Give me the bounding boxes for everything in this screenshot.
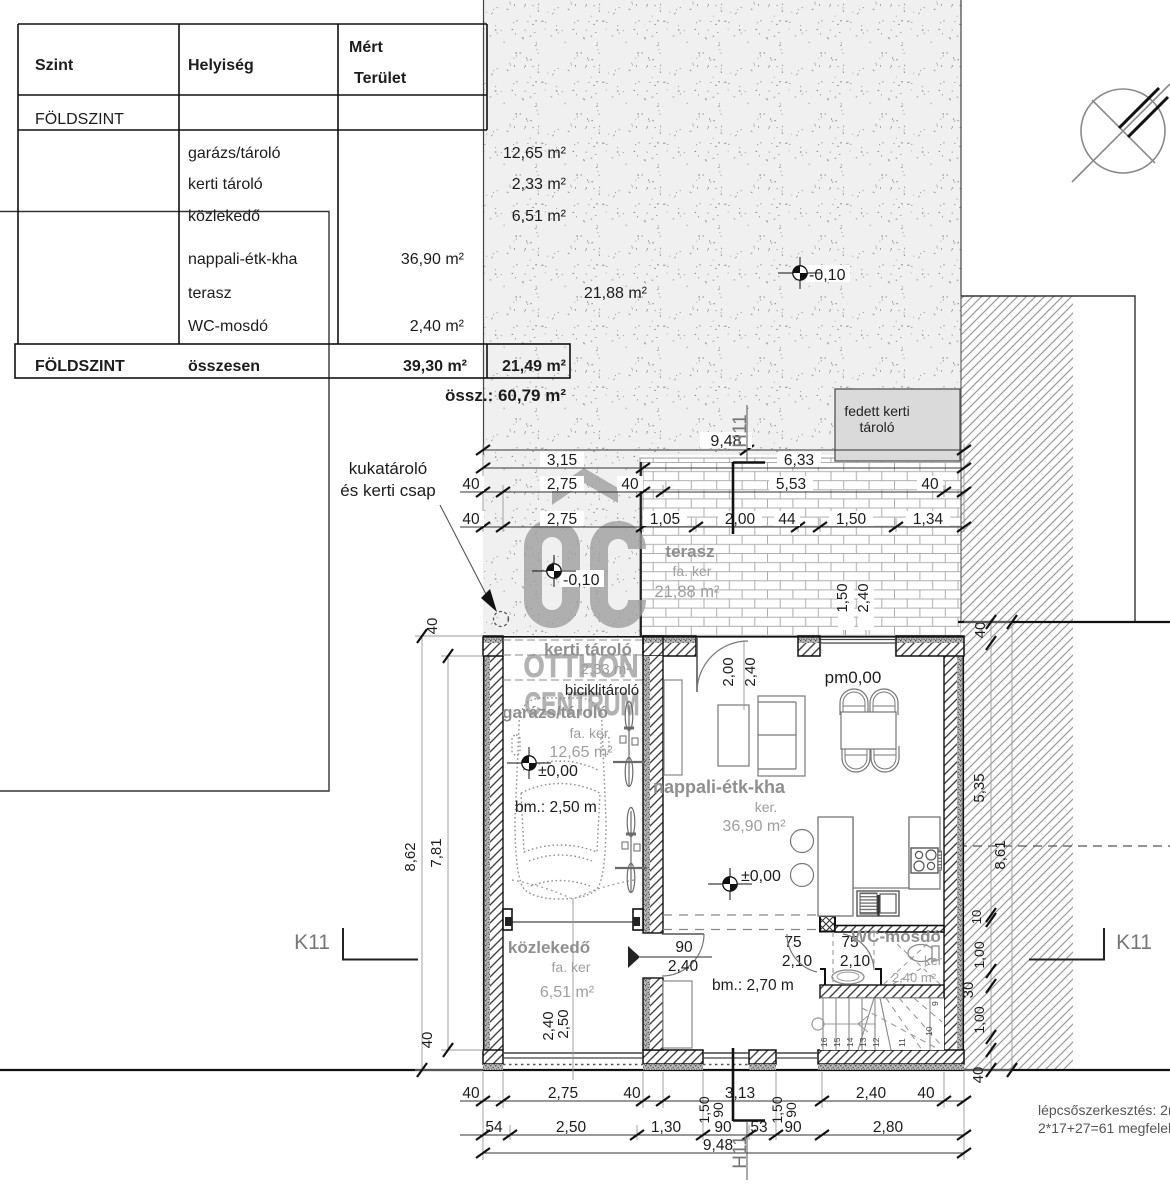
svg-text:1,05: 1,05: [650, 511, 680, 528]
svg-text:7,81: 7,81: [428, 838, 445, 867]
svg-text:90: 90: [714, 1119, 732, 1136]
svg-text:2,80: 2,80: [873, 1119, 904, 1136]
svg-text:nappali-étk-kha: nappali-étk-kha: [188, 251, 298, 268]
svg-text:összesen: összesen: [188, 358, 260, 375]
svg-text:6,51 m²: 6,51 m²: [512, 208, 567, 225]
svg-text:±0,00: ±0,00: [741, 868, 781, 885]
svg-text:H11: H11: [730, 1135, 751, 1168]
svg-text:10: 10: [969, 910, 984, 924]
svg-text:kukatároló: kukatároló: [349, 459, 427, 478]
svg-text:40: 40: [424, 618, 441, 635]
svg-text:13: 13: [858, 1037, 868, 1047]
svg-text:90: 90: [710, 1102, 726, 1118]
svg-text:biciklitároló: biciklitároló: [565, 682, 639, 699]
svg-text:12: 12: [871, 1037, 881, 1047]
svg-text:1,50: 1,50: [836, 511, 867, 528]
svg-text:-0,10: -0,10: [809, 267, 846, 284]
svg-text:2,75: 2,75: [547, 511, 577, 528]
svg-text:39,30 m²: 39,30 m²: [403, 358, 467, 375]
svg-text:2,40: 2,40: [668, 958, 699, 975]
svg-text:FÖLDSZINT: FÖLDSZINT: [35, 356, 125, 375]
svg-text:40: 40: [917, 1085, 935, 1102]
svg-text:2,40 m²: 2,40 m²: [410, 318, 465, 335]
svg-text:terasz: terasz: [665, 542, 714, 561]
svg-text:bm.: 2,70 m: bm.: 2,70 m: [712, 977, 794, 994]
svg-text:Mért: Mért: [349, 39, 383, 56]
svg-text:H11: H11: [730, 414, 751, 447]
svg-text:garázs/tároló: garázs/tároló: [502, 703, 608, 722]
svg-text:és kerti csap: és kerti csap: [340, 481, 435, 500]
svg-text:WC-mosdó: WC-mosdó: [851, 927, 941, 946]
svg-text:40: 40: [623, 1085, 641, 1102]
svg-text:1,00: 1,00: [971, 941, 987, 968]
svg-text:36,90 m²: 36,90 m²: [401, 251, 465, 268]
svg-text:Terület: Terület: [354, 70, 407, 87]
svg-text:K11: K11: [1116, 931, 1152, 954]
svg-text:1,00: 1,00: [971, 1006, 987, 1033]
svg-text:12,65 m²: 12,65 m²: [503, 145, 567, 162]
svg-text:pm0,00: pm0,00: [825, 668, 882, 687]
svg-text:fa. ker: fa. ker: [552, 959, 591, 975]
svg-text:2,00: 2,00: [725, 511, 756, 528]
svg-text:2*17+27=61 megfelel!: 2*17+27=61 megfelel!: [1038, 1120, 1170, 1136]
svg-text:FÖLDSZINT: FÖLDSZINT: [35, 110, 124, 128]
svg-text:3,13: 3,13: [725, 1085, 755, 1102]
svg-text:1,30: 1,30: [651, 1119, 682, 1136]
svg-text:21,88 m²: 21,88 m²: [654, 583, 720, 601]
svg-text:közlekedő: közlekedő: [188, 208, 260, 225]
svg-text:90: 90: [783, 1102, 799, 1118]
svg-text:Helyiség: Helyiség: [188, 57, 254, 74]
svg-text:54: 54: [485, 1119, 503, 1136]
svg-text:2,50: 2,50: [555, 1009, 572, 1038]
svg-text:ker.: ker.: [755, 799, 778, 815]
svg-text:tároló: tároló: [859, 419, 894, 435]
svg-text:40: 40: [921, 476, 939, 493]
svg-text:9: 9: [930, 1001, 940, 1006]
svg-text:2,10: 2,10: [782, 953, 813, 970]
svg-text:fedett kerti: fedett kerti: [844, 403, 909, 419]
svg-text:2,40: 2,40: [856, 1085, 887, 1102]
svg-text:Szint: Szint: [35, 57, 74, 74]
svg-text:44: 44: [778, 511, 796, 528]
svg-text:8,62: 8,62: [402, 842, 419, 871]
svg-text:11: 11: [897, 1038, 907, 1047]
svg-text:40: 40: [972, 622, 989, 639]
svg-text:6,33: 6,33: [784, 452, 814, 469]
svg-text:15: 15: [832, 1037, 842, 1047]
svg-text:5,35: 5,35: [971, 773, 988, 802]
svg-text:21,49 m²: 21,49 m²: [502, 358, 566, 375]
svg-text:terasz: terasz: [188, 285, 232, 302]
svg-text:3,15: 3,15: [547, 452, 577, 469]
svg-text:2,33 m²: 2,33 m²: [581, 661, 632, 678]
svg-text:40: 40: [462, 511, 480, 528]
svg-text:2,00: 2,00: [720, 657, 737, 686]
svg-text:1,50: 1,50: [834, 583, 851, 612]
svg-text:közlekedő: közlekedő: [508, 938, 590, 957]
svg-text:30: 30: [960, 982, 977, 999]
svg-text:K11: K11: [294, 931, 330, 954]
svg-text:kerti tároló: kerti tároló: [544, 640, 632, 659]
svg-text:14: 14: [845, 1037, 855, 1047]
svg-text:40: 40: [621, 476, 639, 493]
svg-text:2,75: 2,75: [548, 1085, 578, 1102]
svg-text:5,53: 5,53: [776, 476, 806, 493]
svg-text:2,40: 2,40: [742, 657, 759, 686]
svg-text:-0,10: -0,10: [563, 572, 600, 589]
svg-text:40: 40: [462, 476, 480, 493]
svg-text:2,33 m²: 2,33 m²: [512, 176, 567, 193]
svg-text:10: 10: [924, 1026, 934, 1036]
svg-text:2,10: 2,10: [840, 953, 871, 970]
svg-text:6,51 m²: 6,51 m²: [540, 984, 595, 1001]
svg-text:36,90 m²: 36,90 m²: [722, 818, 786, 835]
svg-text:90: 90: [675, 939, 693, 956]
svg-text:bm.: 2,50 m: bm.: 2,50 m: [515, 799, 597, 816]
svg-text:12,65 m²: 12,65 m²: [549, 744, 613, 761]
svg-text:9,48: 9,48: [703, 1137, 733, 1154]
svg-text:2,40 m²: 2,40 m²: [892, 970, 937, 985]
svg-text:kerti tároló: kerti tároló: [188, 176, 263, 193]
svg-text:16: 16: [819, 1037, 829, 1047]
svg-text:±0,00: ±0,00: [538, 763, 578, 780]
svg-text:lépcsőszerkesztés: 2m: lépcsőszerkesztés: 2m: [1038, 1102, 1170, 1118]
svg-text:össz.: 60,79 m²: össz.: 60,79 m²: [445, 386, 566, 405]
svg-text:2,50: 2,50: [556, 1119, 587, 1136]
svg-text:2,40: 2,40: [855, 583, 872, 612]
svg-text:2,75: 2,75: [547, 476, 577, 493]
svg-text:fa. ker: fa. ker: [673, 563, 712, 579]
svg-text:8,61: 8,61: [992, 840, 1009, 869]
svg-text:40: 40: [462, 1085, 480, 1102]
svg-text:nappali-étk-kha: nappali-étk-kha: [653, 777, 786, 797]
svg-text:ker: ker: [924, 953, 943, 968]
svg-text:90: 90: [784, 1119, 802, 1136]
svg-text:21,88 m²: 21,88 m²: [584, 285, 648, 302]
svg-text:40: 40: [419, 1032, 436, 1049]
svg-text:fa. ker: fa. ker: [570, 725, 609, 741]
svg-text:1,34: 1,34: [913, 511, 944, 528]
svg-text:40: 40: [970, 1067, 987, 1084]
svg-text:garázs/tároló: garázs/tároló: [188, 145, 281, 162]
svg-text:WC-mosdó: WC-mosdó: [188, 318, 268, 335]
